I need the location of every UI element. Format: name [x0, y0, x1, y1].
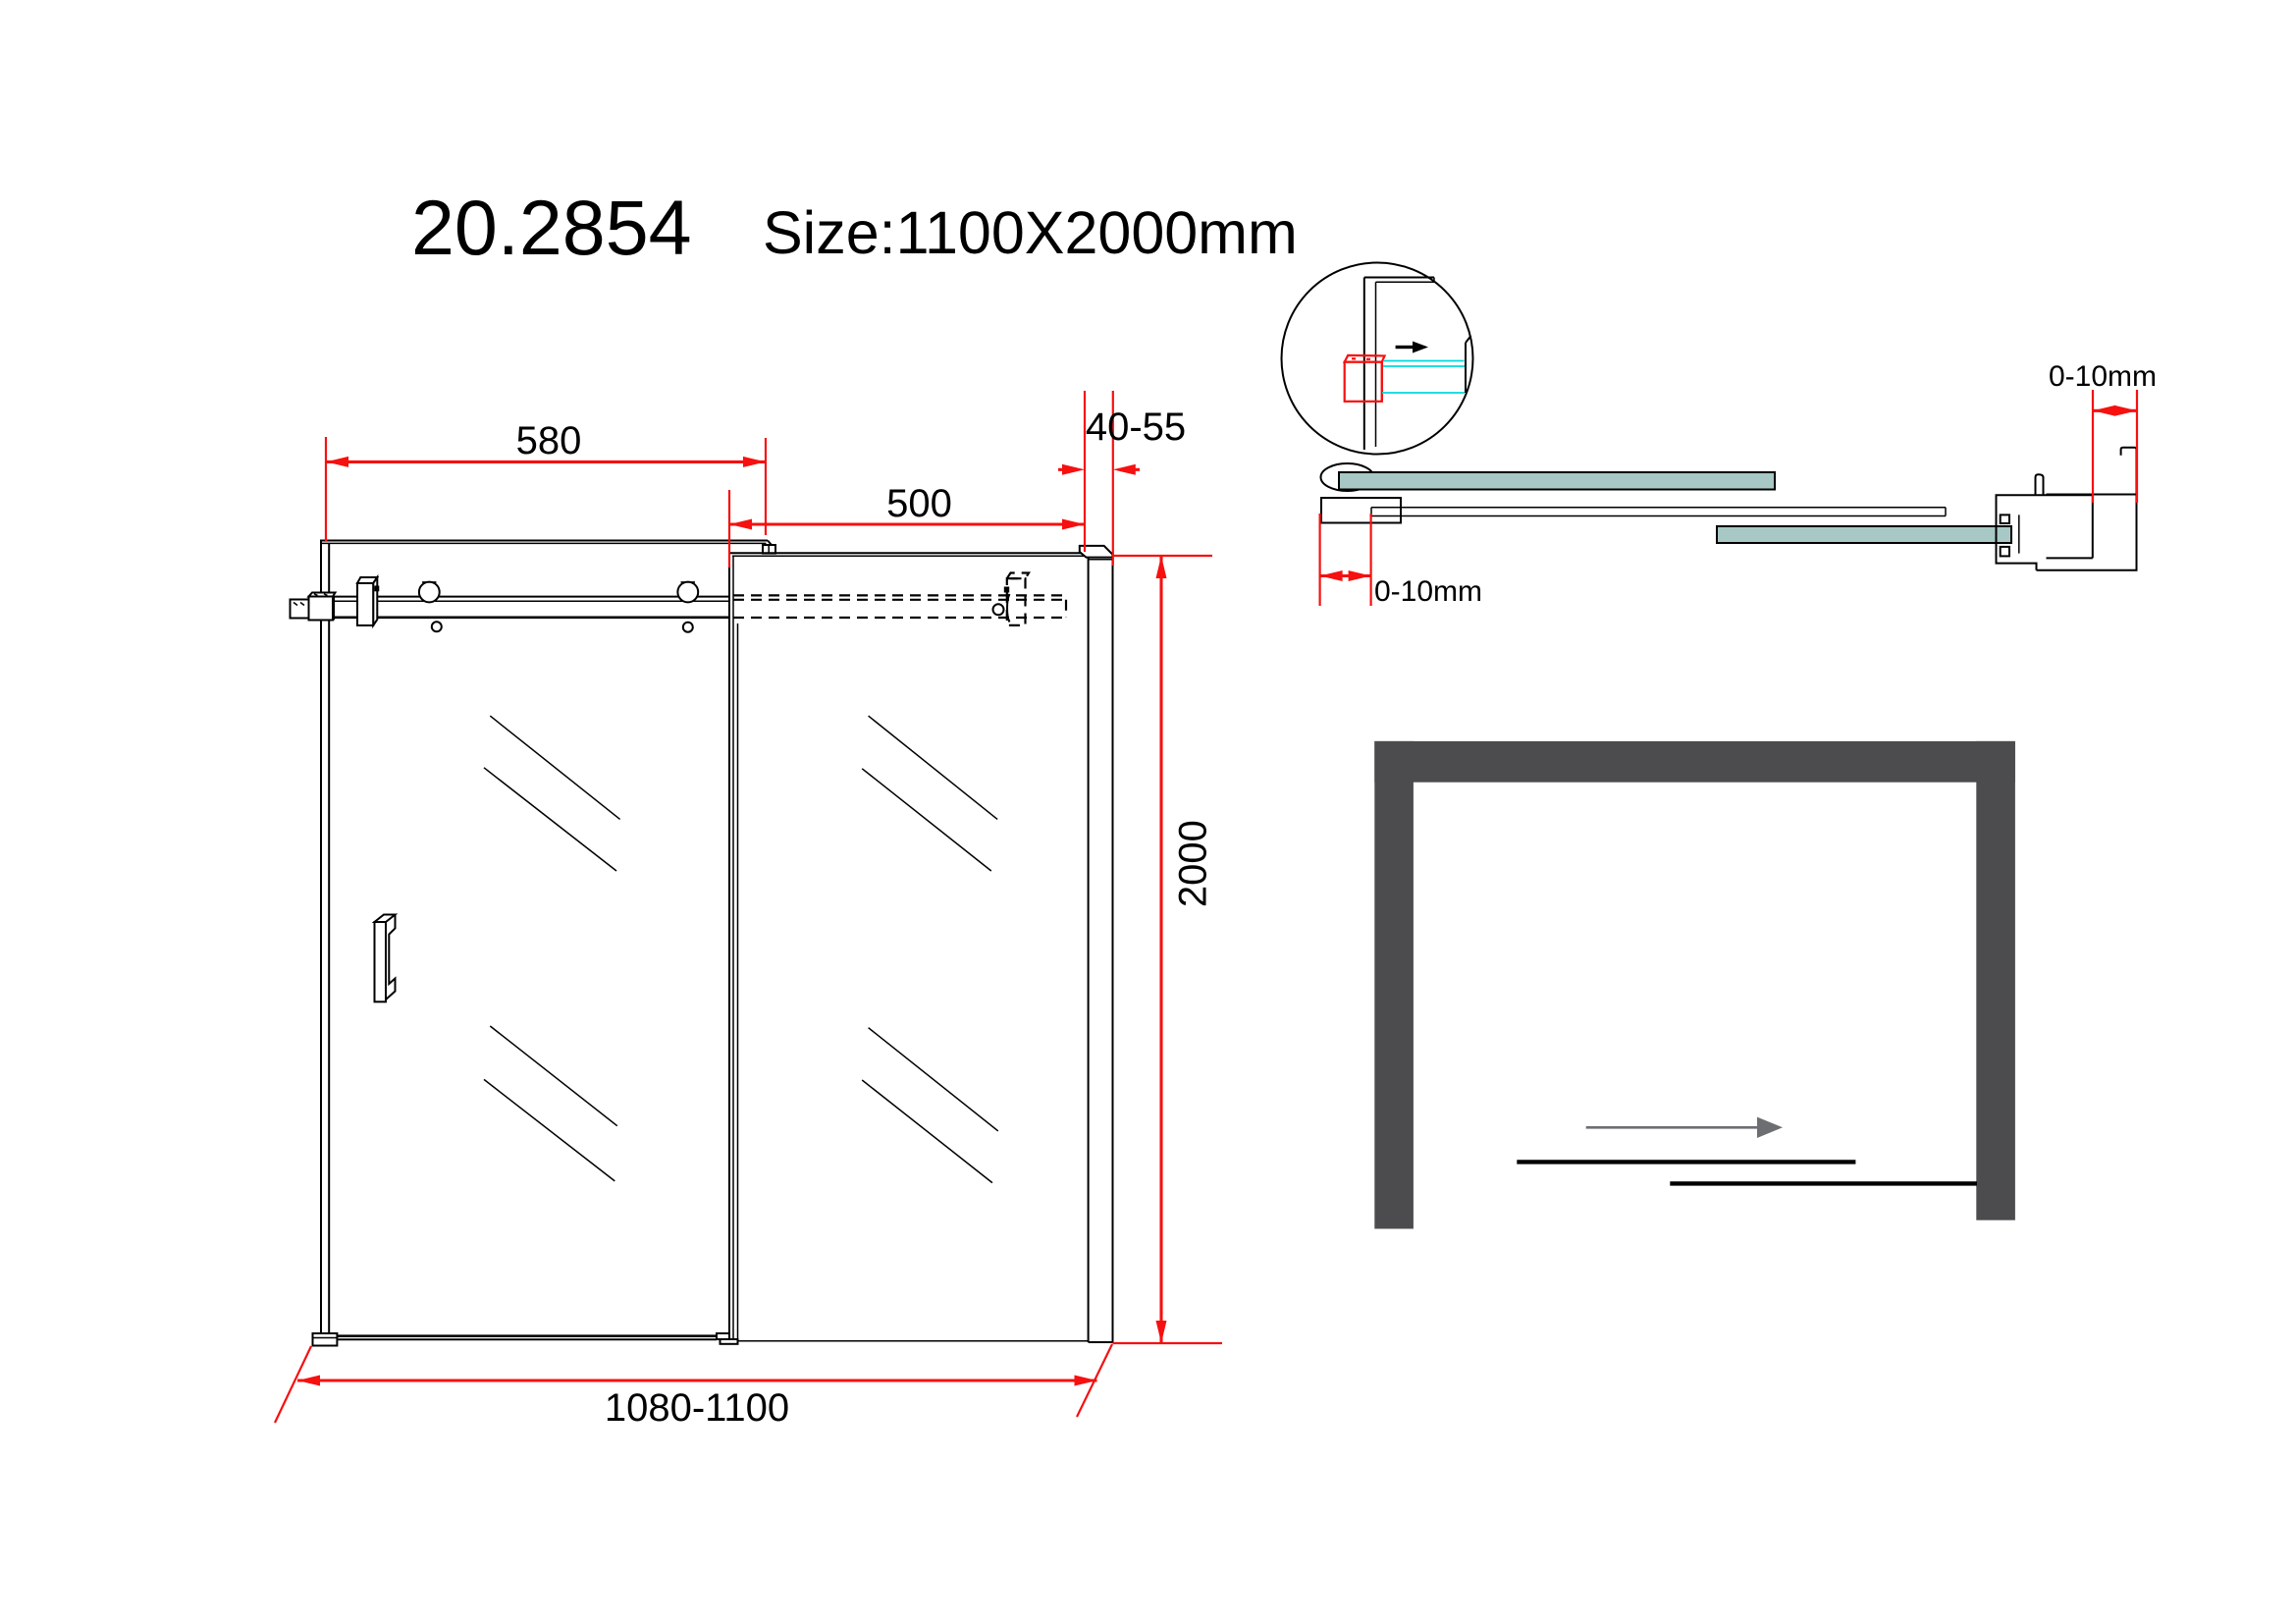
svg-text:0-10mm: 0-10mm [2049, 360, 2157, 393]
svg-text:1080-1100: 1080-1100 [605, 1386, 789, 1430]
svg-text:580: 580 [516, 419, 582, 462]
svg-text:20.2854: 20.2854 [411, 184, 692, 271]
svg-text:40-55: 40-55 [1086, 406, 1186, 449]
svg-text:Size:1100X2000mm: Size:1100X2000mm [763, 199, 1298, 266]
svg-text:500: 500 [886, 482, 952, 525]
svg-text:0-10mm: 0-10mm [1374, 575, 1482, 608]
svg-text:2000: 2000 [1172, 820, 1215, 907]
